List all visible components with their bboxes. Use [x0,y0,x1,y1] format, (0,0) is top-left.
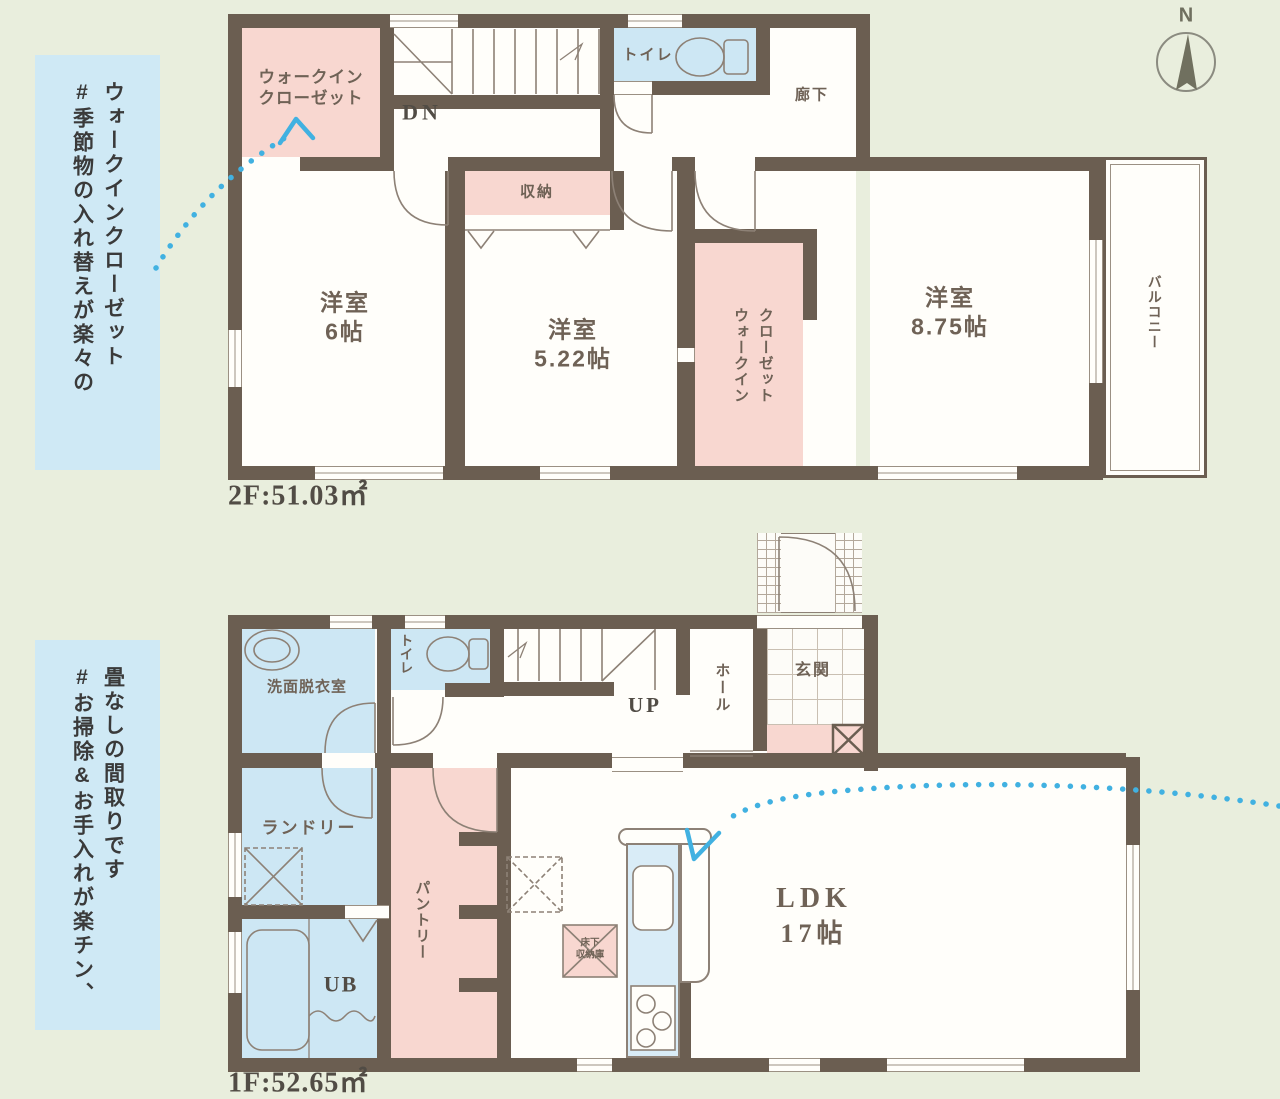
room-size: 17帖 [780,919,847,948]
room-label-walk-in-closet2: ウォークインクローゼット [727,307,777,409]
room-label-entrance: 玄関 [795,661,831,681]
compass-north-label: N [1179,4,1193,29]
room-label-line: クローゼット [259,89,364,107]
stairs-1f-icon [508,629,655,690]
room-name: 洋室 [925,284,975,310]
room-label-bedroom522: 洋室 5.22帖 [534,315,612,373]
floor1-area-label: 1F:52.65㎡ [228,1066,368,1099]
room-label-bedroom875: 洋室 8.75帖 [911,283,989,341]
door-arcs [322,95,855,832]
washer-icon [245,848,302,905]
floorplan-page: #季節物の入れ替えが楽々の ウォークインクローゼット #お掃除&お手入れが楽チン… [0,0,1280,1099]
room-name: 洋室 [548,316,598,342]
room-label-bedroom6: 洋室 6帖 [320,288,370,346]
room-label-toilet-2f: トイレ [622,47,673,66]
stairs-2f-icon [394,29,599,94]
sink-icon [245,630,299,670]
room-label-storage: 収納 [520,184,554,203]
room-label-unit-bath: UB [324,970,359,998]
stove-icon [631,986,675,1050]
stairs-up-label: UP [628,692,662,718]
room-label-line: ウォークイン [259,68,364,86]
shoe-box-x-icon [833,725,864,755]
room-label-column: クローゼット [755,307,774,403]
closet-front-icon [465,230,610,248]
room-label-washroom: 洗面脱衣室 [267,679,347,698]
stairs-down-label: DN [402,98,442,126]
room-label-toilet-1f: トイレ [396,634,413,675]
room-label-line: 収納庫 [576,950,605,961]
toilet-icon-2f [676,38,748,76]
floor2-area-label: 2F:51.03㎡ [228,479,368,514]
room-label-walk-in-closet-2f: ウォークイン クローゼット [259,67,364,108]
room-label-column: ウォークイン [730,307,749,403]
room-name: 洋室 [320,289,370,315]
dotted-arrow-2f [156,119,313,268]
fixtures-overlay [0,0,1280,1099]
room-size: 5.22帖 [534,345,612,371]
room-label-ldk: LDK 17帖 [776,881,852,951]
folding-door-icon [349,920,377,941]
room-label-pantry: パントリー [412,880,431,960]
room-label-corridor: 廊下 [795,87,829,106]
step-lines [690,751,753,756]
kitchen-sink-icon [633,866,673,930]
room-label-hall: ホール [712,663,731,714]
room-size: 8.75帖 [911,313,989,339]
room-size: 6帖 [325,318,365,344]
compass-icon [1157,33,1215,91]
room-name: LDK [776,883,852,914]
room-label-line: 床下 [580,938,599,949]
room-label-balcony: バルコニー [1145,275,1163,350]
toilet-icon-1f [427,637,488,671]
fridge-icon [507,857,562,912]
dotted-arrow-1f [687,785,1279,859]
room-label-underfloor-storage: 床下 収納庫 [576,938,605,963]
room-label-laundry: ランドリー [262,817,357,838]
